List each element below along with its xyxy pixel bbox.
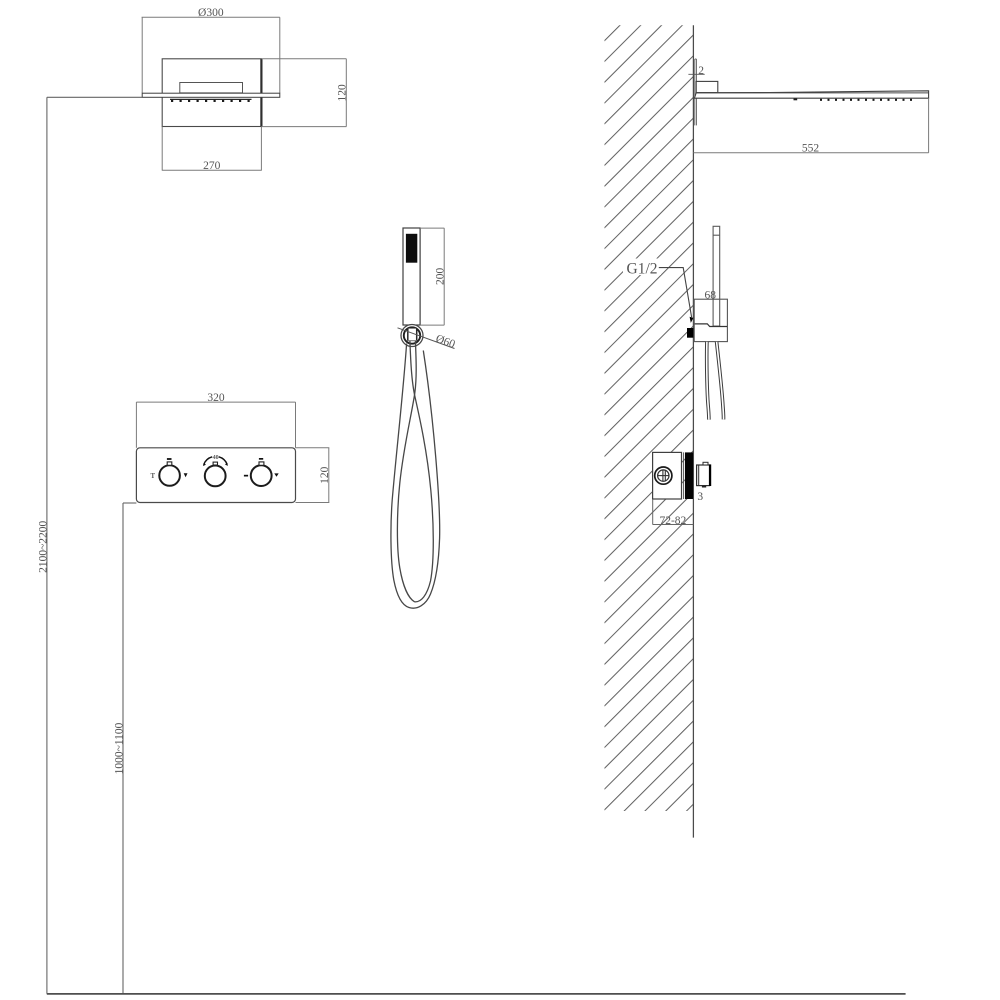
svg-text:120: 120 bbox=[337, 84, 349, 102]
svg-text:3: 3 bbox=[697, 491, 703, 503]
svg-text:68: 68 bbox=[704, 289, 716, 301]
svg-text:72-82: 72-82 bbox=[659, 515, 686, 527]
svg-text:Ø60: Ø60 bbox=[434, 333, 457, 351]
svg-text:200: 200 bbox=[435, 268, 447, 286]
svg-text:552: 552 bbox=[802, 142, 820, 154]
svg-text:320: 320 bbox=[207, 392, 225, 404]
svg-text:120: 120 bbox=[319, 466, 331, 484]
svg-text:Ø300: Ø300 bbox=[198, 7, 224, 19]
svg-text:T: T bbox=[151, 473, 156, 480]
svg-text:2100~2200: 2100~2200 bbox=[37, 520, 49, 572]
svg-text:40: 40 bbox=[213, 455, 219, 461]
svg-text:1000~1100: 1000~1100 bbox=[113, 722, 125, 774]
svg-text:270: 270 bbox=[203, 160, 221, 172]
svg-text:G1/2: G1/2 bbox=[627, 261, 658, 278]
svg-text:2: 2 bbox=[698, 65, 704, 77]
